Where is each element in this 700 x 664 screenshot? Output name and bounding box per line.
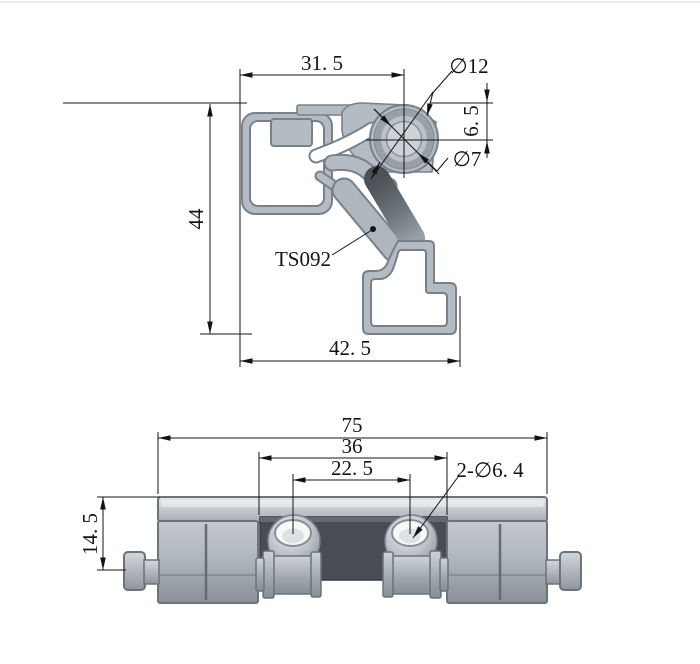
right-inner-collar: [383, 552, 393, 597]
hinge-top-bar-highlight: [161, 500, 544, 507]
left-pin-shaft: [144, 560, 159, 584]
profile-section-view: [242, 103, 456, 334]
left-collar-tip: [256, 558, 264, 591]
dim-front-height-text: 14. 5: [78, 513, 102, 555]
hinge-front-view: [124, 497, 581, 603]
dim-inner-diameter-text: ∅7: [453, 147, 482, 171]
left-inner-collar: [311, 552, 321, 597]
part-number-label: TS092: [275, 247, 331, 271]
dim-outer-diameter-text: ∅12: [449, 54, 488, 78]
leader-inner-dia: [437, 158, 448, 171]
profile-cavity-step: [271, 119, 312, 146]
right-pin-cap: [560, 552, 581, 590]
right-cylinder: [390, 556, 431, 594]
leader-part-label: [332, 230, 372, 255]
right-collar-tip: [440, 558, 448, 591]
right-pin-shaft: [546, 560, 561, 584]
dim-height-text: 44: [184, 208, 208, 230]
dim-hole-spacing-text: 22. 5: [331, 456, 373, 480]
dim-slot-width-text: 36: [342, 434, 363, 458]
right-knuckle-body: [447, 521, 547, 603]
left-cylinder: [273, 556, 314, 594]
left-knuckle-body: [158, 521, 258, 603]
technical-drawing: 31. 5 ∅12 6. 5 ∅7 44 42. 5 TS092: [0, 0, 700, 664]
dim-center-offset-text: 6. 5: [459, 105, 483, 137]
technical-drawing-page: 31. 5 ∅12 6. 5 ∅7 44 42. 5 TS092: [0, 0, 700, 664]
dim-bottom-width-text: 42. 5: [329, 336, 371, 360]
dim-holes-text: 2-∅6. 4: [456, 458, 524, 482]
left-pin-cap: [124, 552, 145, 590]
leader-dot: [370, 226, 376, 232]
dim-top-width-text: 31. 5: [301, 51, 343, 75]
